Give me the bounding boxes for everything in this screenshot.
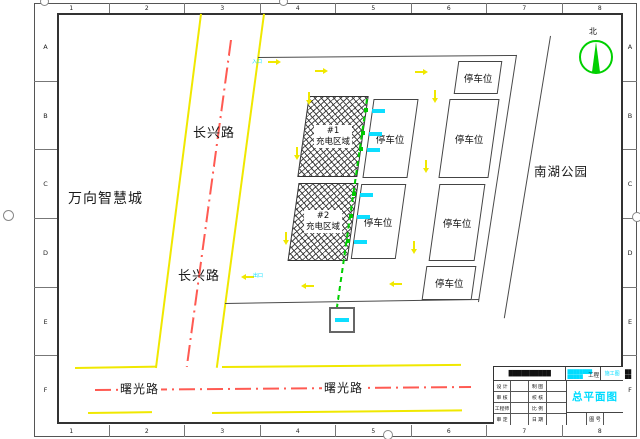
field-value (511, 381, 529, 391)
road-name-label: 曙光路 (118, 380, 161, 397)
traffic-arrow-icon (423, 160, 429, 176)
ruler-left-cell: E (34, 288, 57, 357)
ruler-bottom-cell: 4 (261, 425, 337, 437)
field-value (547, 381, 566, 391)
registration-mark (3, 210, 14, 221)
zone-number: #1 (327, 126, 340, 136)
cable-spec-label (354, 240, 367, 244)
ruler-top-cell: 5 (336, 3, 412, 13)
ruler-right-cell: E (623, 288, 637, 357)
road-name-label: 长兴路 (193, 122, 235, 141)
charging-zone-1-label: #1 充电区域 (314, 125, 352, 148)
registration-mark (632, 212, 640, 222)
road-name-label: 长兴路 (178, 265, 220, 284)
ruler-bottom-cell: 6 (412, 425, 488, 437)
traffic-arrow-icon (283, 232, 289, 248)
ruler-bottom-cell: 5 (336, 425, 412, 437)
area-name-label: 万向智慧城 (68, 188, 143, 208)
company-name: ██████████ (494, 367, 566, 380)
field-label: 审 定 (494, 414, 511, 425)
north-label: 北 (589, 26, 597, 37)
cable-spec-label (372, 109, 385, 113)
side-note-line: ██ (625, 374, 631, 379)
field-value (511, 403, 529, 413)
ruler-right-cell: F (623, 356, 637, 424)
junction-box (329, 307, 355, 333)
design-stage: 施工图 (601, 367, 623, 380)
cable-node (364, 108, 368, 112)
junction-box-label (335, 318, 349, 322)
ruler-left-cell: B (34, 82, 57, 151)
ruler-bottom-cell: 3 (185, 425, 261, 437)
ruler-bottom-cell: 8 (563, 425, 638, 437)
ruler-right-cell: B (623, 82, 637, 151)
parking-stall-label: 停车位 (443, 216, 472, 230)
cable-node (352, 192, 356, 196)
field-value (547, 414, 566, 425)
drawing-no-label: 图 号 (587, 413, 604, 425)
exit-label: 出口 (253, 272, 263, 279)
ruler-bottom-cell: 2 (110, 425, 186, 437)
ruler-bottom: 1 2 3 4 5 6 7 8 (34, 425, 637, 437)
area-name-label: 南湖公园 (534, 161, 588, 180)
parking-stall-label: 停车位 (464, 71, 493, 85)
parking-stall-label: 停车位 (455, 132, 484, 146)
ruler-top-cell: 8 (563, 3, 638, 13)
ruler-bottom-cell: 7 (487, 425, 563, 437)
traffic-arrow-icon (315, 68, 331, 74)
road-name-label: 曙光路 (322, 379, 365, 396)
field-label: 日 期 (529, 414, 547, 425)
ruler-left-cell: F (34, 356, 57, 424)
traffic-arrow-icon (298, 283, 314, 289)
cable-node (361, 131, 365, 135)
field-value (547, 392, 566, 402)
cable-node (359, 147, 363, 151)
cable-node (349, 214, 353, 218)
traffic-arrow-icon (432, 90, 438, 106)
zone-number: #2 (317, 211, 330, 221)
zone-text: 充电区域 (306, 222, 340, 232)
parking-stall: 停车位 (422, 266, 477, 300)
north-arrow-needle (592, 42, 600, 72)
cable-spec-label (369, 132, 382, 136)
charging-zone-2-label: #2 充电区域 (304, 210, 342, 233)
title-block-side-note: ██ ██ (625, 369, 631, 379)
cable-spec-label (367, 148, 380, 152)
cable-spec-label (360, 193, 373, 197)
ruler-right-cell: C (623, 150, 637, 219)
traffic-arrow-icon (415, 69, 431, 75)
project-suffix-label: 工程 (588, 371, 599, 379)
cable-node (346, 239, 350, 243)
traffic-arrow-icon (306, 92, 312, 108)
field-label: 审 核 (494, 392, 511, 402)
field-value (567, 413, 587, 425)
traffic-arrow-icon (238, 274, 254, 280)
title-block: ██████████ ████████ █████ 工程 施工图 设 计 制 图 (493, 366, 623, 424)
ruler-left-cell: D (34, 219, 57, 288)
ruler-top: 1 2 3 4 5 6 7 8 (34, 3, 637, 13)
field-value (511, 392, 529, 402)
ruler-left-cell: C (34, 150, 57, 219)
traffic-arrow-icon (294, 147, 300, 163)
field-label: 比 例 (529, 403, 547, 413)
traffic-arrow-icon (411, 241, 417, 257)
drawing-title: 总平面图 (572, 389, 618, 404)
ruler-top-cell: 2 (110, 3, 186, 13)
field-label: 工程师 (494, 403, 511, 413)
shuguang-road-edge-line (88, 411, 152, 414)
ruler-top-cell: 6 (412, 3, 488, 13)
field-label: 设 计 (494, 381, 511, 391)
field-label: 校 核 (529, 392, 547, 402)
ruler-bottom-cell: 1 (34, 425, 110, 437)
registration-mark (383, 430, 393, 439)
site-plan-sheet: 1 2 3 4 5 6 7 8 1 2 3 4 5 6 7 8 A B C D … (0, 0, 640, 439)
traffic-arrow-icon (386, 281, 402, 287)
ruler-top-cell: 3 (185, 3, 261, 13)
ruler-right-cell: D (623, 219, 637, 288)
ruler-right-cell: A (623, 13, 637, 82)
ruler-top-cell: 4 (261, 3, 337, 13)
ruler-left-cell: A (34, 13, 57, 82)
traffic-arrow-icon (268, 59, 284, 65)
ruler-left: A B C D E F (34, 13, 57, 424)
cable-spec-label (357, 215, 370, 219)
entrance-label: 入口 (252, 58, 262, 65)
field-value (511, 414, 529, 425)
field-value (547, 403, 566, 413)
drawing-no-value (604, 413, 623, 425)
parking-stall: 停车位 (454, 61, 503, 94)
parking-stall-label: 停车位 (435, 276, 464, 290)
zone-text: 充电区域 (316, 137, 350, 147)
field-label: 制 图 (529, 381, 547, 391)
ruler-top-cell: 7 (487, 3, 563, 13)
